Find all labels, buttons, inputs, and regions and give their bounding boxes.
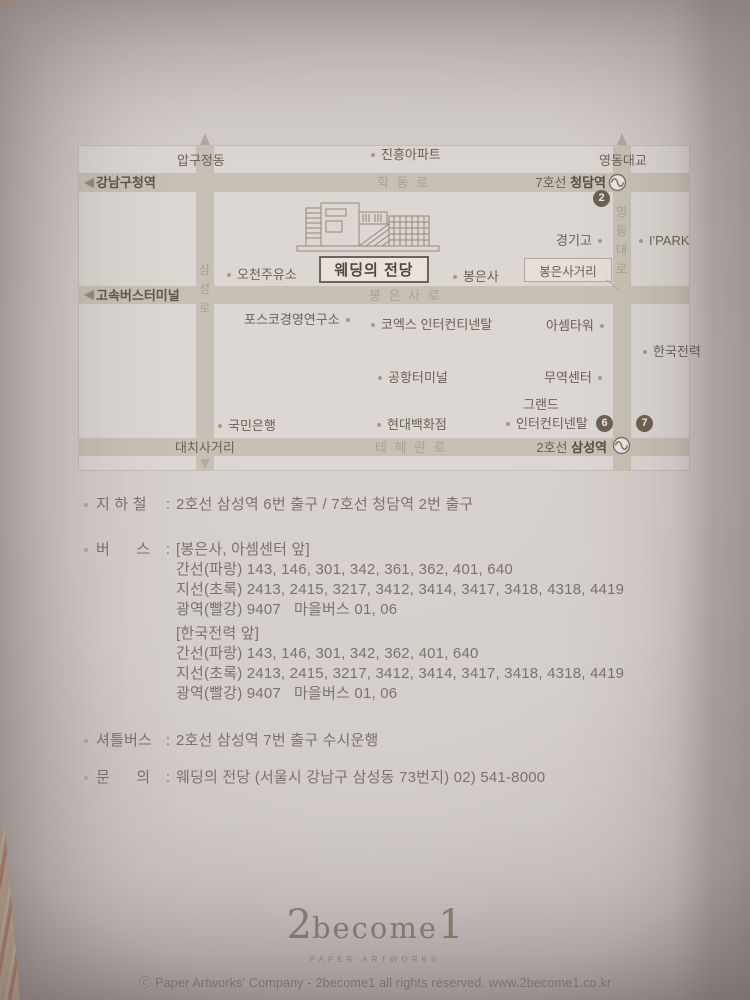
- directions-section: 지 하 철 : 2호선 삼성역 6번 출구 / 7호선 청담역 2번 출구 버 …: [84, 494, 694, 788]
- place-dot: [600, 324, 604, 328]
- station-express-bus-terminal: 고속버스터미널: [96, 288, 180, 303]
- place-label: 경기고: [556, 233, 592, 248]
- exit-7-badge: 7: [636, 415, 653, 432]
- place-dot: [227, 273, 231, 277]
- place-kepco: 한국전력: [643, 344, 701, 359]
- callout-label: 봉은사거리: [539, 261, 597, 280]
- logo-text-2: 2: [287, 902, 312, 948]
- place-label: 봉은사: [463, 269, 499, 284]
- place-dot: [643, 350, 647, 354]
- road-label-yeongdong-daero: 영 동 대 로: [616, 206, 627, 275]
- edge-label-apgujeongdong: 압구정동: [177, 153, 225, 168]
- logo-text-1: 1: [438, 902, 463, 948]
- subway-label: 지 하 철: [96, 494, 160, 515]
- bongeunsa-junction-callout: 봉은사거리: [524, 258, 612, 282]
- exit-6-badge: 6: [596, 415, 613, 432]
- place-dot: [506, 422, 510, 426]
- edge-label-yeongdong-bridge: 영동대교: [599, 153, 647, 168]
- place-dot: [377, 423, 381, 427]
- bus-directions-row: 버 스 : [봉은사, 아셈센터 앞]: [84, 539, 694, 560]
- road-yeongdong-daero: [613, 146, 631, 470]
- place-airport-terminal: 공항터미널: [378, 370, 448, 385]
- place-label: I'PARK: [649, 233, 690, 248]
- road-label-char: 대: [616, 244, 627, 256]
- place-dot: [639, 239, 643, 243]
- place-kyunggi-high-school: 경기고: [556, 233, 602, 248]
- subway-value: 2호선 삼성역 6번 출구 / 7호선 청담역 2번 출구: [176, 494, 473, 515]
- exit-2-badge: 2: [593, 190, 610, 207]
- station-gangnamgu-office: 강남구청역: [96, 175, 156, 190]
- road-label-char: 로: [199, 302, 210, 314]
- bullet-icon: [84, 548, 88, 552]
- bus-line: 지선(초록) 2413, 2415, 3217, 3412, 3414, 341…: [176, 664, 694, 684]
- venue-map: 압구정동 진흥아파트 영동대교 강남구청역 학 동 로 7호선 청담역 2 경기…: [78, 145, 690, 471]
- logo-subtitle: PAPER ARTWORKS: [0, 955, 750, 964]
- north-arrow-icon: [200, 133, 210, 145]
- place-label: 코엑스 인터컨티넨탈: [381, 317, 492, 332]
- place-dot: [371, 153, 375, 157]
- station-line-label: 2호선: [536, 440, 571, 455]
- place-kookmin-bank: 국민은행: [218, 418, 276, 433]
- station-samseong: 2호선 삼성역: [511, 440, 607, 456]
- bus-label: 버 스: [96, 539, 160, 560]
- place-label: 한국전력: [653, 344, 701, 359]
- place-grand-intercontinental-line2: 인터컨티넨탈: [506, 416, 588, 431]
- place-posco-research: 포스코경영연구소: [244, 312, 350, 327]
- place-asem-tower: 아셈타워: [546, 318, 604, 333]
- road-label-char: 영: [616, 206, 627, 218]
- fabric-edge-top: [0, 0, 24, 12]
- subway-icon: [612, 436, 631, 455]
- station-cheongdam: 7호선 청담역: [511, 175, 606, 191]
- place-label: 무역센터: [544, 370, 592, 385]
- north-arrow-icon: [617, 133, 627, 145]
- place-label: 현대백화점: [387, 417, 447, 432]
- place-dot: [346, 318, 350, 322]
- bus-line: 간선(파랑) 143, 146, 301, 342, 361, 362, 401…: [176, 560, 694, 580]
- venue-name-box: 웨딩의 전당: [319, 256, 429, 283]
- place-label: 진흥아파트: [381, 147, 441, 162]
- place-dot: [218, 424, 222, 428]
- road-label-samseong-ro: 삼 성 로: [199, 264, 210, 314]
- shuttle-label: 셔틀버스: [96, 730, 160, 751]
- inquiry-row: 문 의 : 웨딩의 전당 (서울시 강남구 삼성동 73번지) 02) 541-…: [84, 767, 694, 788]
- place-label: 인터컨티넨탈: [516, 416, 588, 431]
- place-trade-center: 무역센터: [544, 370, 602, 385]
- bullet-icon: [84, 776, 88, 780]
- label-colon: :: [160, 767, 176, 788]
- road-label-char: 동: [616, 225, 627, 237]
- road-label-bongeunsa-ro: 봉 은 사 로: [369, 287, 442, 305]
- subway-icon: [608, 173, 627, 192]
- inquiry-value: 웨딩의 전당 (서울시 강남구 삼성동 73번지) 02) 541-8000: [176, 767, 545, 788]
- station-name-label: 삼성역: [571, 440, 607, 455]
- place-label: 그랜드: [523, 397, 559, 412]
- bullet-icon: [84, 503, 88, 507]
- place-dot: [378, 376, 382, 380]
- bullet-icon: [84, 739, 88, 743]
- bus-location: [한국전력 앞]: [176, 624, 694, 644]
- place-grand-intercontinental-line1: 그랜드: [523, 397, 559, 412]
- place-label: 포스코경영연구소: [244, 312, 340, 327]
- label-colon: :: [160, 539, 176, 560]
- place-jinheung-apartment: 진흥아파트: [371, 147, 441, 162]
- place-dot: [371, 323, 375, 327]
- place-ocheon-gas-station: 오천주유소: [227, 267, 297, 282]
- subway-directions-row: 지 하 철 : 2호선 삼성역 6번 출구 / 7호선 청담역 2번 출구: [84, 494, 694, 515]
- logo-text-become: become: [312, 911, 438, 945]
- bus-line: 광역(빨강) 9407 마을버스 01, 06: [176, 684, 694, 704]
- station-line-label: 7호선: [535, 175, 570, 190]
- label-colon: :: [160, 730, 176, 751]
- bus-line: 간선(파랑) 143, 146, 301, 342, 362, 401, 640: [176, 644, 694, 664]
- road-label-hakdong-ro: 학 동 로: [377, 174, 430, 192]
- direction-card-photo: 압구정동 진흥아파트 영동대교 강남구청역 학 동 로 7호선 청담역 2 경기…: [0, 0, 750, 1000]
- place-label: 국민은행: [228, 418, 276, 433]
- shuttle-value: 2호선 삼성역 7번 출구 수시운행: [176, 730, 379, 751]
- place-coex-intercontinental: 코엑스 인터컨티넨탈: [371, 317, 492, 332]
- road-label-teheran-ro: 테 헤 란 로: [375, 439, 448, 457]
- place-ipark: I'PARK: [639, 233, 690, 248]
- place-bongeunsa-temple: 봉은사: [453, 269, 499, 284]
- south-arrow-icon: [200, 459, 210, 469]
- copyright-line: ⓒ Paper Artworks' Company - 2become1 all…: [0, 972, 750, 991]
- inquiry-label: 문 의: [96, 767, 160, 788]
- road-label-daechi-junction: 대치사거리: [175, 440, 235, 455]
- west-arrow-icon: [84, 178, 94, 188]
- place-label: 아셈타워: [546, 318, 594, 333]
- shuttle-directions-row: 셔틀버스 : 2호선 삼성역 7번 출구 수시운행: [84, 730, 694, 751]
- place-dot: [453, 275, 457, 279]
- road-label-char: 로: [616, 263, 627, 275]
- west-arrow-icon: [84, 290, 94, 300]
- brand-logo: 2become1 PAPER ARTWORKS: [0, 903, 750, 964]
- place-hyundai-department-store: 현대백화점: [377, 417, 447, 432]
- bus-location: [봉은사, 아셈센터 앞]: [176, 539, 310, 560]
- bus-line: 지선(초록) 2413, 2415, 3217, 3412, 3414, 341…: [176, 580, 694, 600]
- bus-line: 광역(빨강) 9407 마을버스 01, 06: [176, 600, 694, 620]
- station-name-label: 청담역: [570, 175, 606, 190]
- road-label-char: 삼: [199, 264, 210, 276]
- place-label: 오천주유소: [237, 267, 297, 282]
- place-dot: [598, 239, 602, 243]
- venue-building-illustration: [294, 196, 444, 256]
- label-colon: :: [160, 494, 176, 515]
- place-label: 공항터미널: [388, 370, 448, 385]
- place-dot: [598, 376, 602, 380]
- road-label-char: 성: [199, 283, 210, 295]
